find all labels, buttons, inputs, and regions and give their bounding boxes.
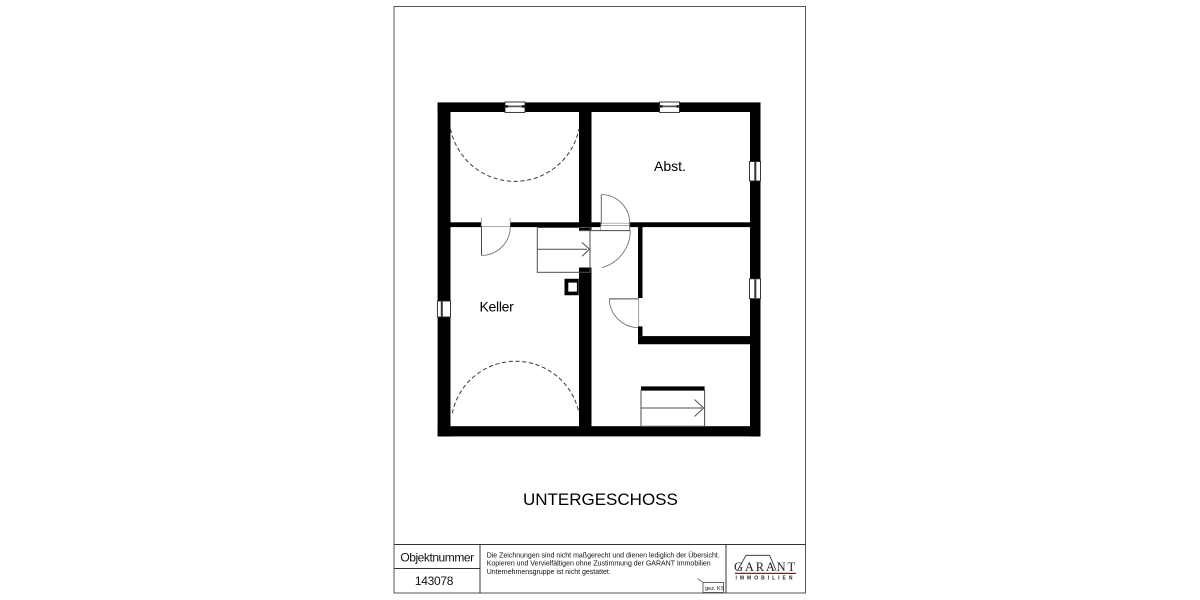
svg-text:Die Zeichnungen sind nicht maß: Die Zeichnungen sind nicht maßgerecht un…: [487, 551, 720, 559]
svg-text:Objektnummer: Objektnummer: [400, 550, 474, 564]
svg-text:UNTERGESCHOSS: UNTERGESCHOSS: [523, 490, 678, 509]
svg-text:Unternehmensgruppe ist nicht g: Unternehmensgruppe ist nicht gestattet.: [487, 569, 611, 576]
svg-text:Keller: Keller: [480, 299, 515, 315]
svg-text:GARANT: GARANT: [734, 560, 797, 574]
svg-text:143078: 143078: [415, 574, 454, 588]
svg-text:gez. KS: gez. KS: [705, 586, 725, 592]
svg-text:Kopieren und Vervielfältigen o: Kopieren und Vervielfältigen ohne Zustim…: [487, 561, 711, 568]
svg-text:Abst.: Abst.: [654, 158, 686, 174]
svg-text:IMMOBILIEN: IMMOBILIEN: [736, 576, 796, 582]
